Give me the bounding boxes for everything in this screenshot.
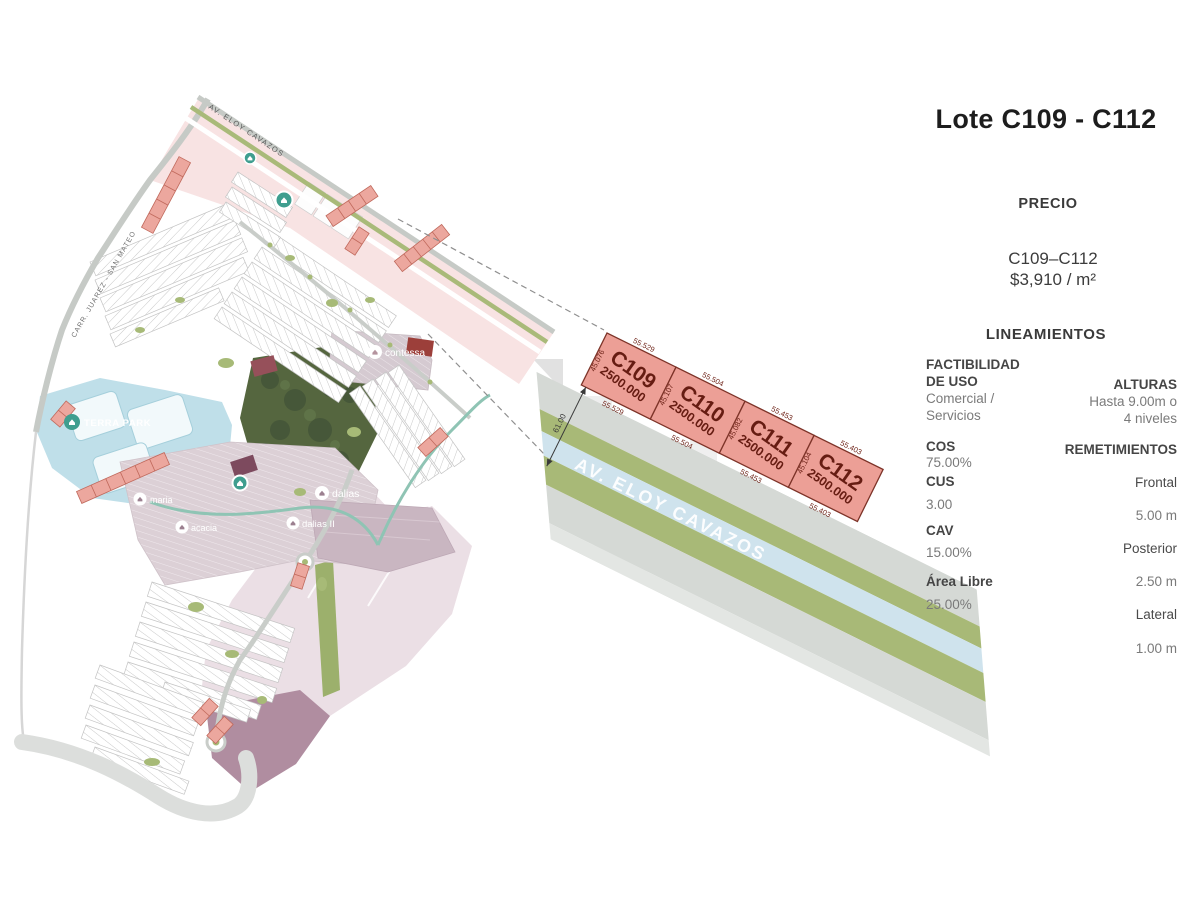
factibilidad-label: FACTIBILIDAD [926, 357, 1020, 372]
sector-label-terra-park: TERRA PARK [84, 418, 151, 429]
sector-label-maria: maria [150, 495, 173, 505]
alturas-value2: 4 niveles [997, 411, 1177, 426]
lineamientos-heading: LINEAMIENTOS [896, 326, 1196, 343]
cos-label: COS [926, 439, 955, 454]
area-libre-label: Área Libre [926, 574, 993, 589]
cus-value: 3.00 [926, 497, 952, 512]
master-plan-map: AV. ELOY CAVAZOS CARR. JUAREZ - SAN MATE… [21, 96, 554, 813]
sector-label-dalias2: dalias II [302, 519, 335, 530]
frontal-label: Frontal [997, 475, 1177, 490]
page-title: Lote C109 - C112 [896, 104, 1196, 135]
factibilidad-label2: DE USO [926, 374, 978, 389]
posterior-label: Posterior [997, 541, 1177, 556]
road-west-boundary [21, 432, 36, 742]
cav-label: CAV [926, 523, 954, 538]
precio-value: $3,910 / m² [903, 270, 1200, 290]
alturas-value1: Hasta 9.00m o [997, 394, 1177, 409]
precio-range: C109–C112 [903, 249, 1200, 269]
frontal-value: 5.00 m [997, 508, 1177, 523]
factibilidad-value1: Comercial / [926, 391, 994, 406]
slide: AV. ELOY CAVAZOS CARR. JUAREZ - SAN MATE… [0, 0, 1200, 900]
alturas-label: ALTURAS [997, 377, 1177, 392]
cos-value: 75.00% [926, 455, 972, 470]
area-libre-value: 25.00% [926, 597, 972, 612]
cav-value: 15.00% [926, 545, 972, 560]
remetimientos-label: REMETIMIENTOS [997, 442, 1177, 457]
sector-label-contessa: contessa [385, 348, 425, 359]
factibilidad-value2: Servicios [926, 408, 981, 423]
posterior-value: 2.50 m [997, 574, 1177, 589]
lateral-value: 1.00 m [997, 641, 1177, 656]
sector-label-dalias: dalias [332, 488, 359, 500]
sector-label-acacia: acacia [191, 523, 217, 533]
cus-label: CUS [926, 474, 955, 489]
lateral-label: Lateral [997, 607, 1177, 622]
precio-heading: PRECIO [898, 196, 1198, 212]
